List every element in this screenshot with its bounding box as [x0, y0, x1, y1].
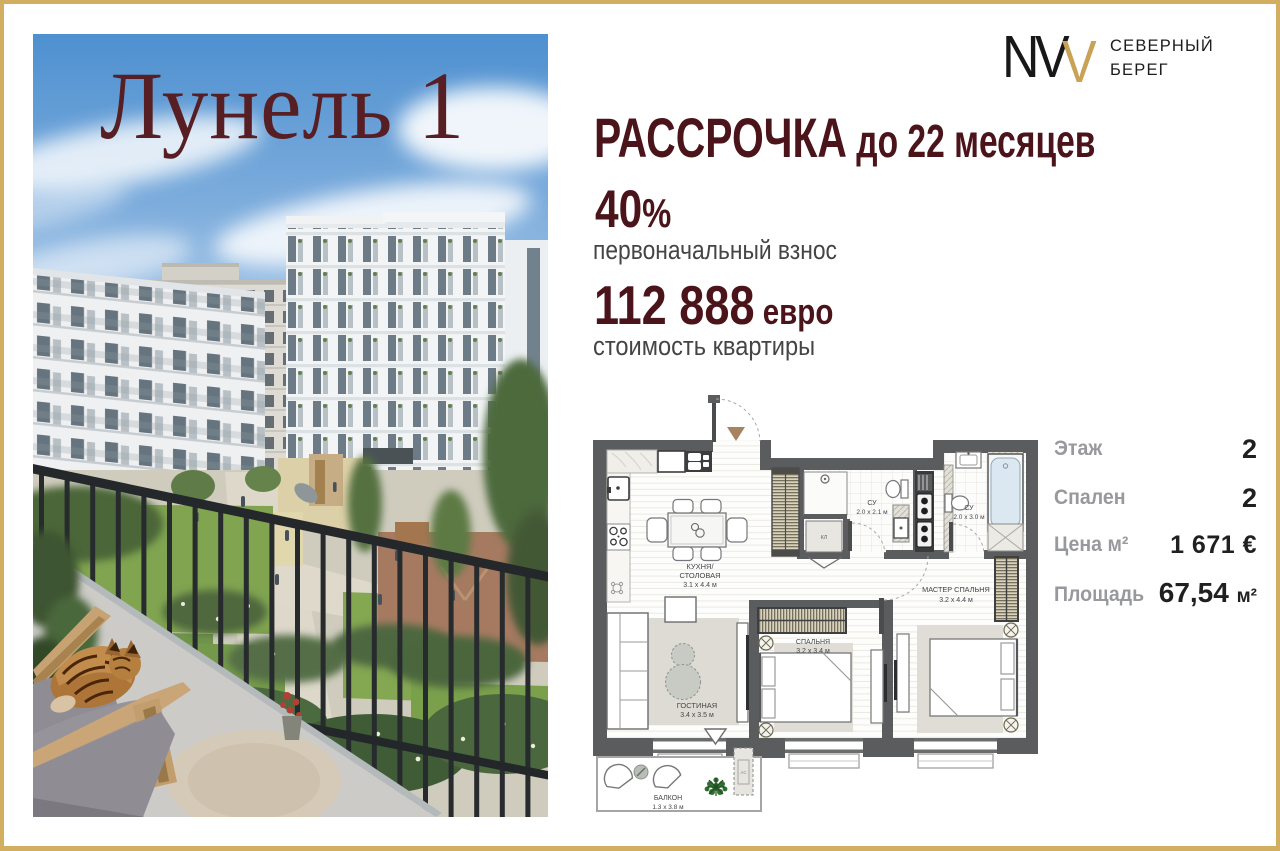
svg-text:AC: AC — [740, 770, 747, 775]
svg-text:3.4 х 3.5 м: 3.4 х 3.5 м — [680, 712, 714, 719]
svg-text:3.2 х 4.4 м: 3.2 х 4.4 м — [939, 597, 973, 604]
svg-text:2.0 х 2.1 м: 2.0 х 2.1 м — [856, 509, 888, 516]
svg-text:СПАЛЬНЯ: СПАЛЬНЯ — [796, 639, 830, 646]
svg-text:БАЛКОН: БАЛКОН — [654, 795, 682, 802]
svg-text:СУ: СУ — [867, 500, 877, 507]
svg-text:КУХНЯ/: КУХНЯ/ — [686, 562, 714, 571]
svg-text:1.3 х 3.8 м: 1.3 х 3.8 м — [652, 804, 684, 811]
svg-text:СУ: СУ — [964, 505, 974, 512]
svg-text:КЛ: КЛ — [821, 535, 828, 541]
svg-text:3.1 х 4.4 м: 3.1 х 4.4 м — [683, 582, 717, 589]
svg-text:СТОЛОВАЯ: СТОЛОВАЯ — [679, 571, 720, 580]
svg-text:2.0 х 3.0 м: 2.0 х 3.0 м — [953, 514, 985, 521]
svg-text:МАСТЕР СПАЛЬНЯ: МАСТЕР СПАЛЬНЯ — [922, 585, 990, 594]
svg-text:ГОСТИНАЯ: ГОСТИНАЯ — [677, 701, 717, 710]
svg-text:3.2 х 3.4 м: 3.2 х 3.4 м — [796, 648, 830, 655]
